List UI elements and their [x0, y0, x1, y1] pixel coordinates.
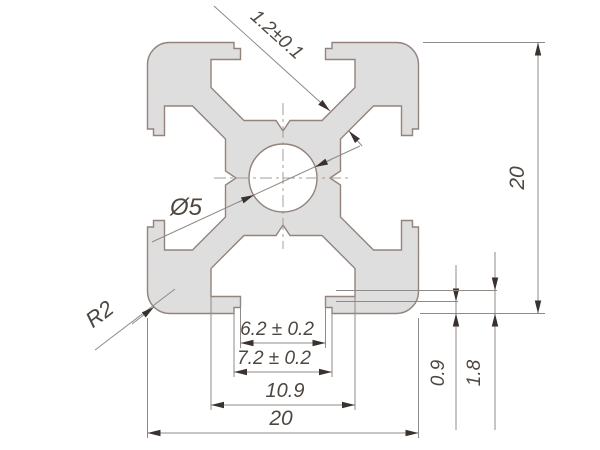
slot-opening-label: 6.2 ± 0.2: [240, 319, 314, 340]
dimension-slot-throat: 7.2 ± 0.2: [234, 308, 332, 378]
lip-offset-label: 0.9: [428, 359, 449, 386]
slot-width-label: 10.9: [266, 380, 305, 402]
cad-drawing-page: 1.2±0.1 Ø5 R2 6.2 ± 0.2 7.2 ± 0.2 10.9: [0, 0, 600, 450]
ledge-offset-label: 1.8: [464, 359, 485, 386]
slot-throat-label: 7.2 ± 0.2: [237, 348, 311, 369]
corner-radius-label: R2: [81, 296, 119, 333]
web-thickness-label: 1.2±0.1: [246, 6, 307, 64]
hole-diameter-label: Ø5: [169, 194, 203, 221]
dimension-overall-height: 20: [420, 43, 545, 314]
overall-height-label: 20: [506, 166, 529, 191]
extrusion-profile-drawing: 1.2±0.1 Ø5 R2 6.2 ± 0.2 7.2 ± 0.2 10.9: [0, 0, 600, 450]
dimension-slot-opening: 6.2 ± 0.2: [240, 297, 325, 348]
overall-width-label: 20: [268, 407, 293, 430]
